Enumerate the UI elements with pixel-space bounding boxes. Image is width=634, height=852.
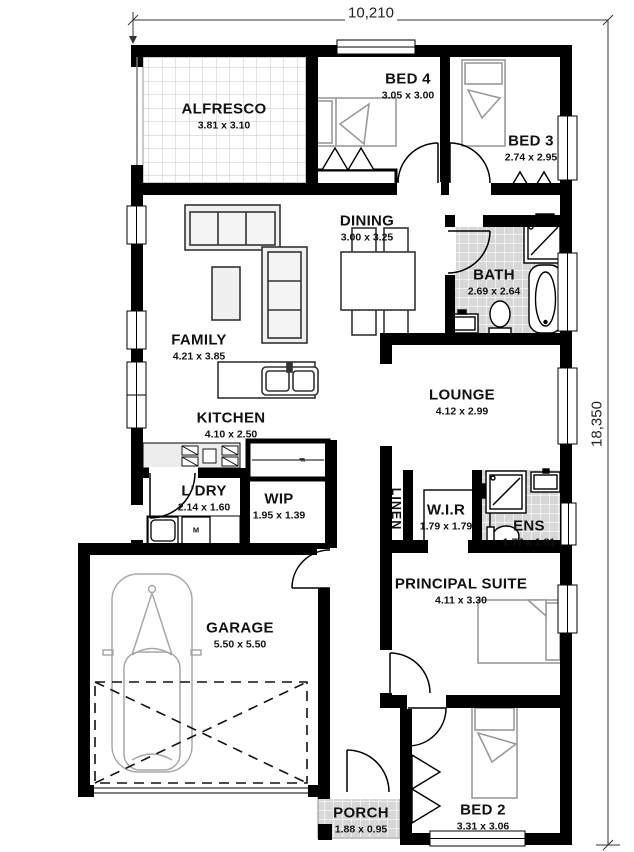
room-size: 5.50 x 5.50 (206, 639, 274, 651)
room-name: W.I.R (420, 501, 473, 518)
room-label-bed4: BED 4 3.05 x 3.00 (382, 70, 435, 101)
room-size: 3.31 x 3.06 (457, 821, 510, 833)
room-name: ALFRESCO (182, 100, 267, 117)
floorplan-drawing (0, 0, 634, 852)
room-label-kitchen: KITCHEN 4.10 x 2.50 (197, 409, 266, 440)
room-name: PRINCIPAL SUITE (395, 575, 527, 592)
overall-width-dimension: 10,210 (345, 5, 397, 22)
room-size: 4.21 x 3.85 (171, 351, 226, 363)
bed2-bed (472, 705, 517, 798)
room-size: 2.69 x 2.64 (468, 286, 521, 298)
window (127, 311, 146, 349)
room-size: 2.74 x 2.95 (505, 152, 558, 164)
family-sofa-vertical (262, 247, 307, 343)
window (127, 206, 146, 244)
window (561, 503, 576, 545)
bed3-bed (462, 60, 505, 146)
room-name: BED 2 (457, 801, 510, 818)
principal-bed (478, 600, 563, 663)
window (558, 368, 577, 444)
floorplan-page: 10,210 18,350 ALFRESCO 3.81 x 3.10 BED 4… (0, 0, 634, 852)
room-label-bath: BATH 2.69 x 2.64 (468, 266, 521, 297)
fridge-marker: F (298, 458, 307, 463)
room-label-ens: ENS 1.77 x 1.81 (503, 517, 556, 548)
room-name: BED 4 (382, 70, 435, 87)
room-name: BED 3 (505, 132, 558, 149)
window (430, 831, 525, 846)
room-label-bed2: BED 2 3.31 x 3.06 (457, 801, 510, 832)
window (558, 585, 577, 633)
room-label-bed3: BED 3 2.74 x 2.95 (505, 132, 558, 163)
room-size: 2.14 x 1.60 (178, 502, 231, 514)
principal-door (390, 653, 430, 693)
overall-depth-dimension: 18,350 (589, 398, 606, 450)
room-label-wip: WIP 1.95 x 1.39 (253, 490, 306, 521)
bed3-door (450, 143, 490, 183)
garage-bay-dashed (95, 682, 307, 783)
window (558, 253, 577, 331)
room-label-principal: PRINCIPAL SUITE 4.11 x 3.30 (395, 575, 527, 606)
room-size: 3.81 x 3.10 (182, 120, 267, 132)
kitchen-island (218, 362, 318, 398)
room-name: PORCH (333, 804, 389, 821)
window (127, 362, 146, 428)
room-label-linen: LINEN (389, 488, 403, 531)
room-name: ENS (503, 517, 556, 534)
room-size: 1.95 x 1.39 (253, 510, 306, 522)
room-size: 3.00 x 3.25 (340, 232, 394, 244)
room-name: FAMILY (171, 331, 226, 348)
room-size: 4.11 x 3.30 (395, 595, 527, 607)
room-label-porch: PORCH 1.88 x 0.95 (333, 804, 389, 835)
window (337, 40, 415, 54)
room-size: 4.10 x 2.50 (197, 429, 266, 441)
bed4-door (398, 143, 438, 183)
room-size: 4.12 x 2.99 (429, 406, 495, 418)
room-name: WIP (253, 490, 306, 507)
room-size: 3.05 x 3.00 (382, 90, 435, 102)
fridge-nook (248, 441, 328, 479)
car (103, 574, 201, 772)
room-name: LINEN (389, 488, 403, 531)
room-label-lounge: LOUNGE 4.12 x 2.99 (429, 386, 495, 417)
window (558, 116, 577, 180)
bed4-robe (312, 148, 396, 185)
family-sofa-horizontal (185, 205, 280, 250)
room-size: 1.88 x 0.95 (333, 824, 389, 836)
room-label-wir: W.I.R 1.79 x 1.79 (420, 501, 473, 532)
room-name: DINING (340, 212, 394, 229)
bed4-bed (312, 98, 396, 146)
coffee-table (212, 267, 240, 320)
room-name: L'DRY (178, 482, 231, 499)
room-size: 1.79 x 1.79 (420, 521, 473, 533)
dining-set (341, 228, 415, 335)
bed2-robe (412, 755, 440, 823)
room-name: KITCHEN (197, 409, 266, 426)
room-label-ldry: L'DRY 2.14 x 1.60 (178, 482, 231, 513)
bed2-door (408, 708, 446, 746)
room-name: BATH (468, 266, 521, 283)
room-label-garage: GARAGE 5.50 x 5.50 (206, 619, 274, 650)
room-size: 1.77 x 1.81 (503, 537, 556, 549)
room-name: LOUNGE (429, 386, 495, 403)
room-name: GARAGE (206, 619, 274, 636)
washing-machine-marker: M (193, 526, 199, 535)
room-label-family: FAMILY 4.21 x 3.85 (171, 331, 226, 362)
room-label-alfresco: ALFRESCO 3.81 x 3.10 (182, 100, 267, 131)
room-label-dining: DINING 3.00 x 3.25 (340, 212, 394, 243)
